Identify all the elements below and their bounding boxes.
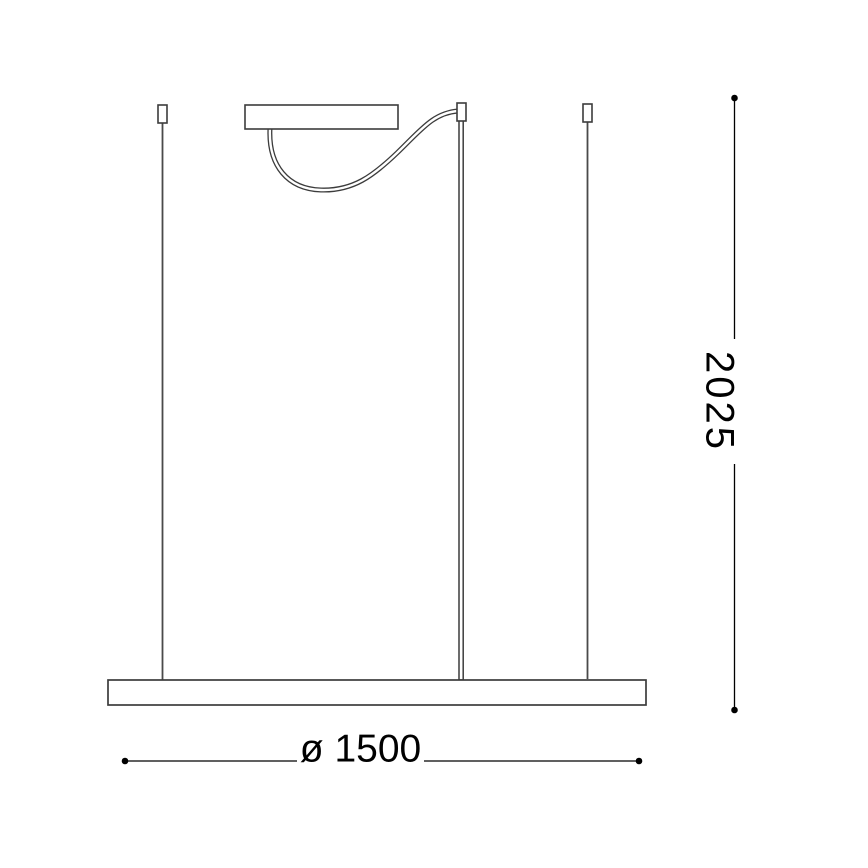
- diameter-dimension-endpoint-right: [636, 758, 642, 764]
- ceiling-canopy: [245, 105, 398, 129]
- diameter-dimension-endpoint-left: [122, 758, 128, 764]
- diameter-dimension: ø 1500: [122, 728, 642, 771]
- center-ceiling-attachment: [457, 103, 466, 121]
- pendant-lamp-drawing: [108, 103, 646, 705]
- right-ceiling-attachment: [583, 104, 592, 122]
- center-suspension-rod: [459, 120, 463, 680]
- left-ceiling-attachment: [158, 105, 167, 123]
- diameter-dimension-label: ø 1500: [300, 728, 421, 771]
- technical-drawing-canvas: 2025 ø 1500: [0, 0, 868, 868]
- height-dimension-endpoint-top: [732, 95, 738, 101]
- height-dimension-endpoint-bottom: [732, 707, 738, 713]
- height-dimension-label: 2025: [698, 351, 742, 452]
- technical-drawing-page: 2025 ø 1500: [0, 0, 868, 868]
- lamp-ring-profile: [108, 680, 646, 705]
- height-dimension: 2025: [698, 95, 742, 713]
